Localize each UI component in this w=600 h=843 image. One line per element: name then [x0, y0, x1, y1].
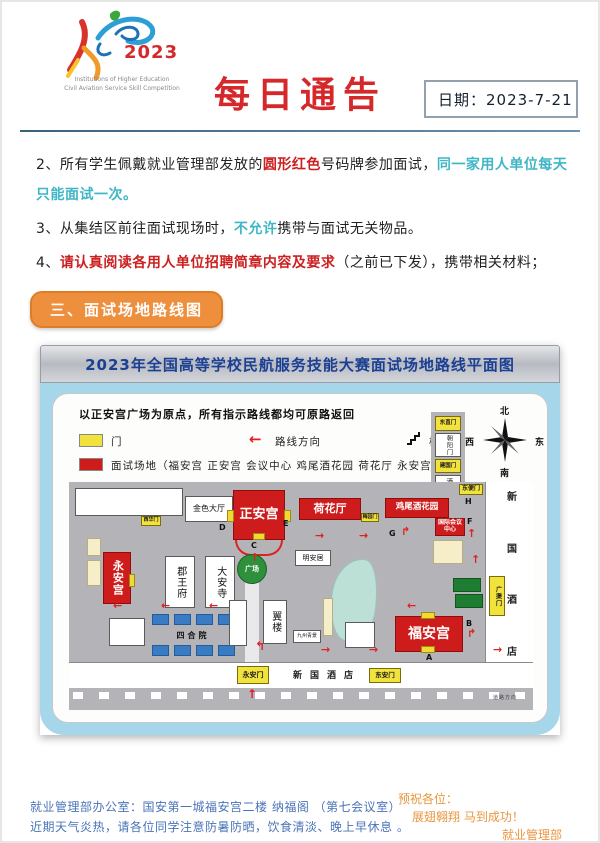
legend-venue-swatch [79, 458, 103, 471]
compass-east-label: 东 [535, 435, 544, 448]
venue-yonganggong: 永安宫 [103, 552, 131, 604]
gate-guangqumen: 广渠门 [489, 576, 505, 616]
map-note: 以正安宫广场为原点，所有指示路线都均可原路返回 [79, 406, 355, 422]
notice-page: 2023 Institutions of Higher Education Ci… [0, 0, 600, 843]
date-box: 日期：2023-7-21 [424, 80, 578, 118]
hotel-char: 新 [507, 488, 517, 503]
route-arrow-icon: ↱ [467, 628, 476, 639]
route-arrow-icon: ↑ [467, 528, 476, 539]
footer-signature: 就业管理部 [398, 826, 576, 843]
notice-4-suffix: （之前已下发），携带相关材料； [335, 255, 546, 271]
gate-meiyuanmen: 梅园门 [361, 513, 379, 522]
door-tab [421, 612, 435, 619]
courtyard-square [152, 614, 169, 625]
hotel-south-label: 新国酒店 [281, 668, 373, 681]
gate-jianguomen: 建国门 [435, 459, 461, 473]
courtyard-square [174, 645, 191, 656]
route-arrow-icon: → [359, 530, 368, 541]
hotel-east-label: 新 国 酒 店 [505, 488, 519, 658]
route-arrow-icon: ↑ [471, 554, 480, 565]
map-title-bar: 2023年全国高等学校民航服务技能大赛面试场地路线平面图 [40, 345, 560, 383]
building-jiuzhou: 九州青景 [293, 630, 321, 643]
point-letter-g: G [389, 530, 396, 538]
building-cream-west-2 [87, 560, 101, 586]
south-wall [69, 688, 533, 710]
compass-rose: 北 南 西 东 [473, 408, 537, 472]
courtyard-square [174, 614, 191, 625]
compass-west-label: 西 [465, 435, 474, 448]
notice-3-teal-highlight: 不允许 [234, 221, 278, 237]
compass-south-label: 南 [500, 466, 509, 479]
notice-list: 2、所有学生佩戴就业管理部发放的圆形红色号码牌参加面试，同一家用人单位每天只能面… [36, 150, 568, 282]
gate-donganmen: 东安门 [369, 668, 401, 683]
gate-dongzhimen: 东直门 [435, 416, 461, 431]
road-direction-note: 道路方向 [493, 694, 517, 701]
courtyard-square [218, 645, 235, 656]
route-arrow-icon: ↑ [247, 688, 257, 700]
venue-hehuating: 荷花厅 [299, 498, 361, 520]
building-block-center [229, 600, 247, 646]
point-letter-f: F [467, 518, 472, 526]
footer-weather-line: 近期天气炎热，请各位同学注意防暑防晒，饮食清淡、晚上早休息 。 [30, 818, 409, 838]
route-arrow-icon: → [493, 644, 502, 655]
hotel-char: 店 [507, 643, 517, 658]
courtyard-square [152, 645, 169, 656]
route-arrow-icon: ← [209, 600, 218, 611]
point-letter-a: A [426, 654, 432, 662]
compass-star-icon [473, 408, 537, 472]
header-divider [20, 130, 580, 132]
route-arrow-icon: ← [161, 600, 170, 611]
legend-direction-label: 路线方向 [275, 434, 321, 449]
map-background: 以正安宫广场为原点，所有指示路线都均可原路返回 门 ← 路线方向 楼梯 面试场地… [40, 383, 560, 735]
point-letter-b: B [466, 620, 472, 628]
building-green-2 [455, 594, 483, 608]
section-badge: 三、面试场地路线图 [30, 291, 223, 328]
route-arrow-icon: → [315, 530, 324, 541]
hotel-char: 酒 [507, 591, 517, 606]
notice-4-red-highlight: 请认真阅读各用人单位招聘简章内容及要求 [60, 255, 336, 271]
door-tab [227, 510, 234, 522]
door-tab [421, 646, 435, 653]
logo-year: 2023 [124, 42, 178, 63]
notice-2-red-highlight: 圆形红色 [263, 157, 321, 173]
footer-wishes: 预祝各位： 展翅翱翔 马到成功！ 就业管理部 [398, 790, 576, 843]
building-cream-center [323, 598, 333, 636]
building-cream-west-1 [87, 538, 101, 556]
notice-3-text: 3、从集结区前往面试现场时， [36, 221, 234, 237]
building-cream-east [433, 540, 463, 564]
footer-office-info: 就业管理部办公室：国安第一城福安宫二楼 纳福阁 （第七会议室） 近期天气炎热，请… [30, 798, 409, 838]
notice-4-num: 4、 [36, 255, 60, 271]
footer-wish-line1: 预祝各位： [398, 790, 576, 808]
point-letter-d: D [219, 524, 226, 532]
footer-wish-line2: 展翅翱翔 马到成功！ [398, 808, 576, 826]
venue-cocktail-garden: 鸡尾酒花园 [385, 498, 449, 518]
building-block-sw [109, 618, 145, 646]
map-body: 西华门 金色大厅 正安宫 荷花厅 梅园门 鸡尾酒花园 国际会议中心 东便门 [69, 482, 533, 710]
siheyuan-row [147, 645, 239, 656]
route-arrow-icon: ← [113, 600, 122, 611]
notice-item-2: 2、所有学生佩戴就业管理部发放的圆形红色号码牌参加面试，同一家用人单位每天只能面… [36, 150, 568, 210]
route-arrow-icon: ↑ [250, 552, 259, 563]
point-letter-c: C [251, 542, 257, 550]
courtyard-square [196, 645, 213, 656]
building-siheyuan: 四合院 [147, 614, 239, 656]
route-arrow-icon: → [321, 644, 330, 655]
venue-intl-conference-center: 国际会议中心 [435, 518, 465, 536]
point-letter-h: H [465, 498, 472, 506]
building-green-1 [453, 578, 481, 592]
footer-office-line: 就业管理部办公室：国安第一城福安宫二楼 纳福阁 （第七会议室） [30, 798, 409, 818]
legend-direction-arrow-icon: ← [249, 432, 262, 447]
notice-3-suffix: 携带与面试无关物品。 [277, 221, 422, 237]
building-block-nw [75, 488, 183, 516]
route-arrow-icon: ↰ [255, 640, 265, 652]
gate-yonganmen: 永安门 [237, 666, 269, 684]
page-title: 每日通告 [170, 66, 430, 118]
route-map: 2023年全国高等学校民航服务技能大赛面试场地路线平面图 以正安宫广场为原点，所… [40, 345, 560, 735]
legend-stairs-icon [405, 430, 421, 446]
building-golden-hall: 金色大厅 [185, 496, 233, 522]
door-tab [129, 574, 135, 587]
route-arrow-icon: ← [407, 600, 416, 611]
notice-2-text: 2、所有学生佩戴就业管理部发放的 [36, 157, 263, 173]
notice-item-3: 3、从集结区前往面试现场时，不允许携带与面试无关物品。 [36, 214, 568, 244]
building-minganju: 明安居 [295, 550, 331, 566]
notice-2-mid: 号码牌参加面试， [321, 157, 437, 173]
notice-item-4: 4、请认真阅读各用人单位招聘简章内容及要求（之前已下发），携带相关材料； [36, 248, 568, 278]
hotel-char: 国 [507, 540, 517, 555]
legend-gate-swatch [79, 434, 103, 447]
door-tab [253, 533, 265, 540]
compass-north-label: 北 [500, 404, 509, 417]
building-chaoyangmen: 朝阳门 [435, 433, 461, 457]
legend-gate-label: 门 [111, 434, 123, 449]
gate-dongbianmen: 东便门 [459, 484, 483, 495]
siheyuan-row [147, 614, 239, 625]
gate-xihuamen: 西华门 [141, 516, 161, 526]
courtyard-square [196, 614, 213, 625]
route-arrow-icon: → [369, 644, 378, 655]
map-title: 2023年全国高等学校民航服务技能大赛面试场地路线平面图 [85, 354, 515, 375]
siheyuan-label: 四合院 [147, 630, 239, 641]
legend-venue-label: 面试场地（福安宫 正安宫 会议中心 鸡尾酒花园 荷花厅 永安宫） [111, 458, 443, 473]
point-letter-e: E [283, 520, 288, 528]
building-yilou: 翼楼 [263, 600, 287, 644]
map-panel: 以正安宫广场为原点，所有指示路线都均可原路返回 门 ← 路线方向 楼梯 面试场地… [52, 393, 548, 723]
route-arrow-icon: ↱ [401, 526, 410, 537]
